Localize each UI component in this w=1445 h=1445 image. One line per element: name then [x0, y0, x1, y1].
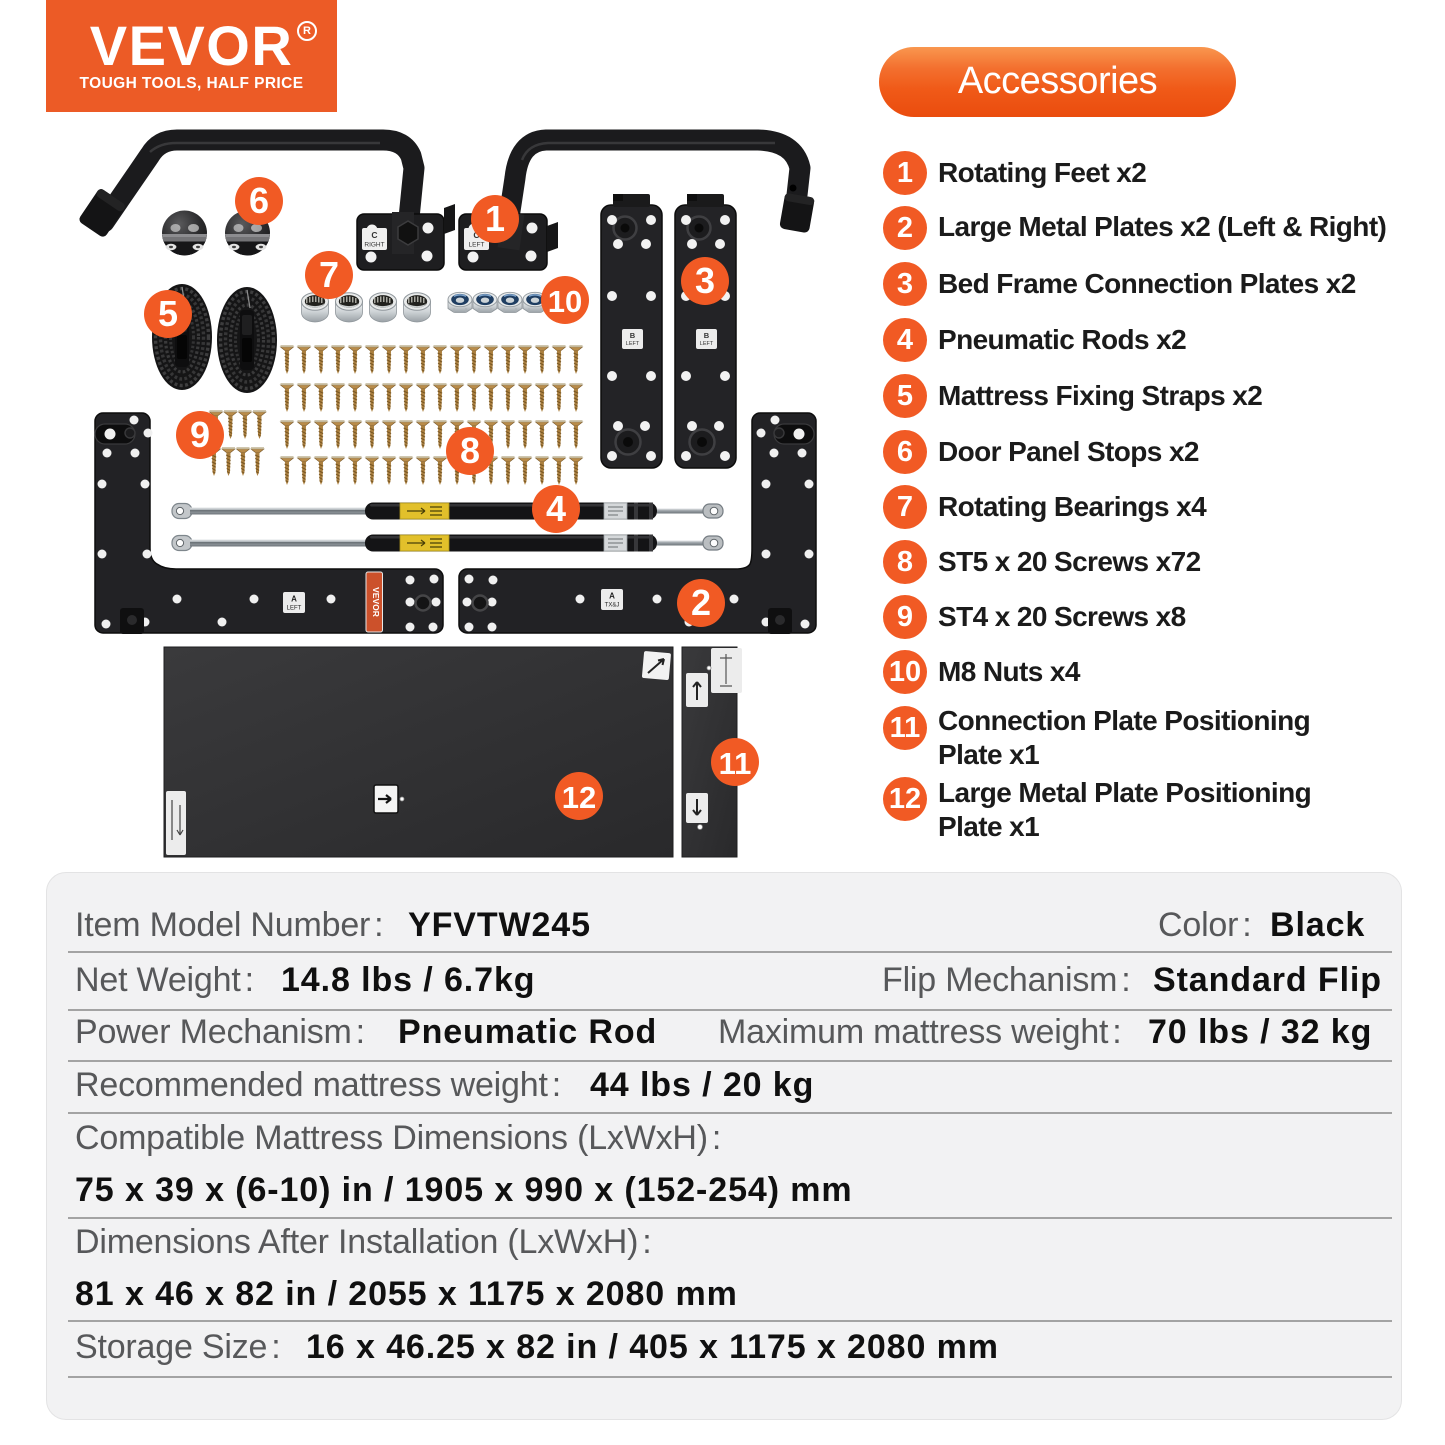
svg-text:11: 11	[719, 746, 752, 781]
svg-text:A: A	[291, 595, 297, 604]
svg-text:9: 9	[190, 414, 210, 455]
svg-text:12: 12	[562, 780, 596, 815]
svg-text:5: 5	[158, 293, 178, 334]
svg-text:6: 6	[249, 180, 269, 221]
svg-text:3: 3	[695, 260, 715, 301]
svg-text:RIGHT: RIGHT	[364, 242, 384, 249]
svg-text:2: 2	[691, 582, 711, 623]
svg-text:8: 8	[460, 430, 480, 471]
svg-text:4: 4	[546, 488, 566, 529]
svg-text:LEFT: LEFT	[469, 242, 485, 249]
svg-text:LEFT: LEFT	[287, 606, 302, 612]
svg-text:C: C	[371, 230, 377, 240]
svg-text:VEVOR: VEVOR	[371, 587, 381, 617]
svg-text:A: A	[609, 592, 615, 601]
svg-text:TX&J: TX&J	[605, 603, 620, 609]
svg-text:10: 10	[548, 284, 582, 319]
svg-text:1: 1	[485, 198, 505, 239]
svg-text:7: 7	[319, 254, 339, 295]
